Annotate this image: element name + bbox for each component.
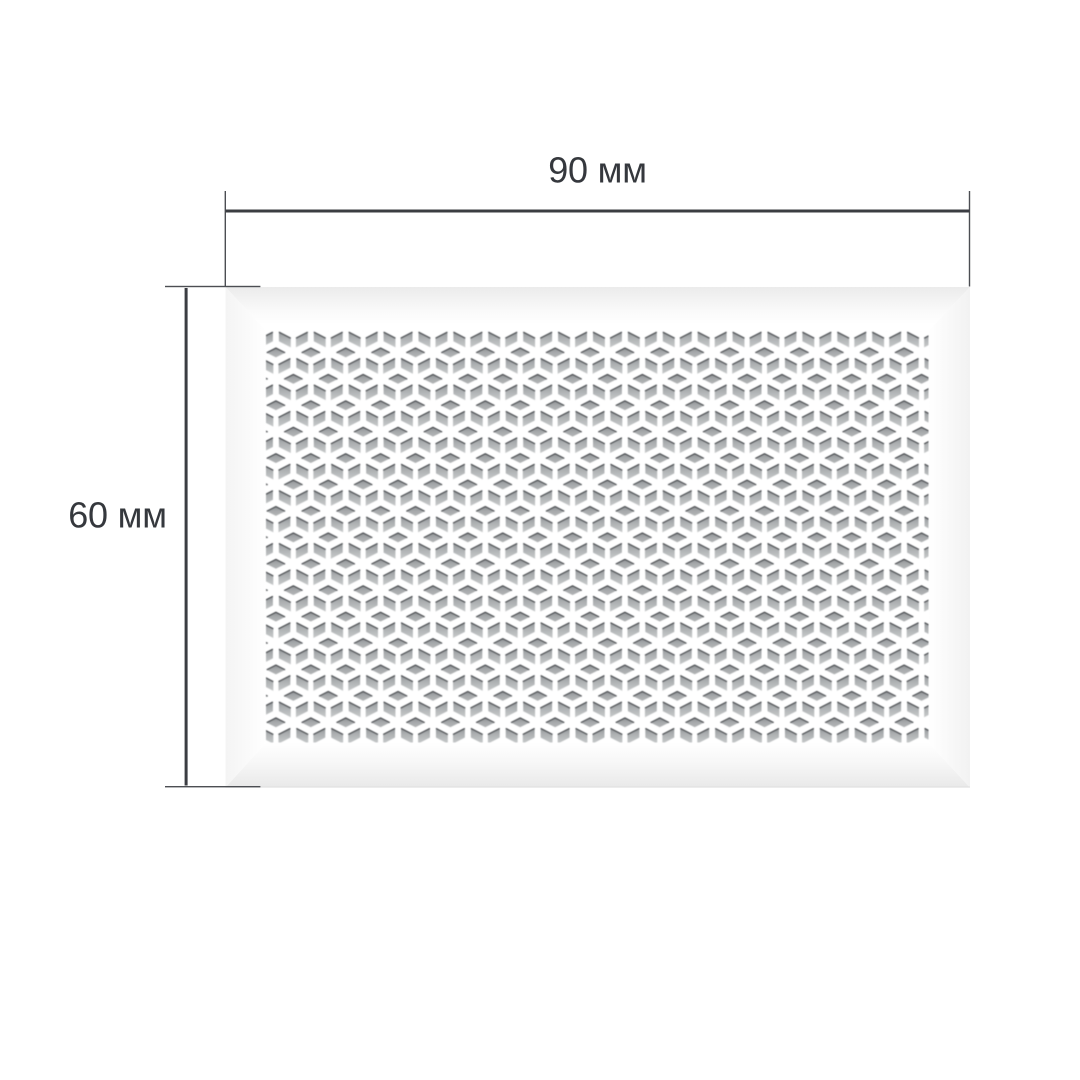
svg-text:60 мм: 60 мм [68, 495, 167, 536]
svg-text:90 мм: 90 мм [548, 150, 647, 191]
